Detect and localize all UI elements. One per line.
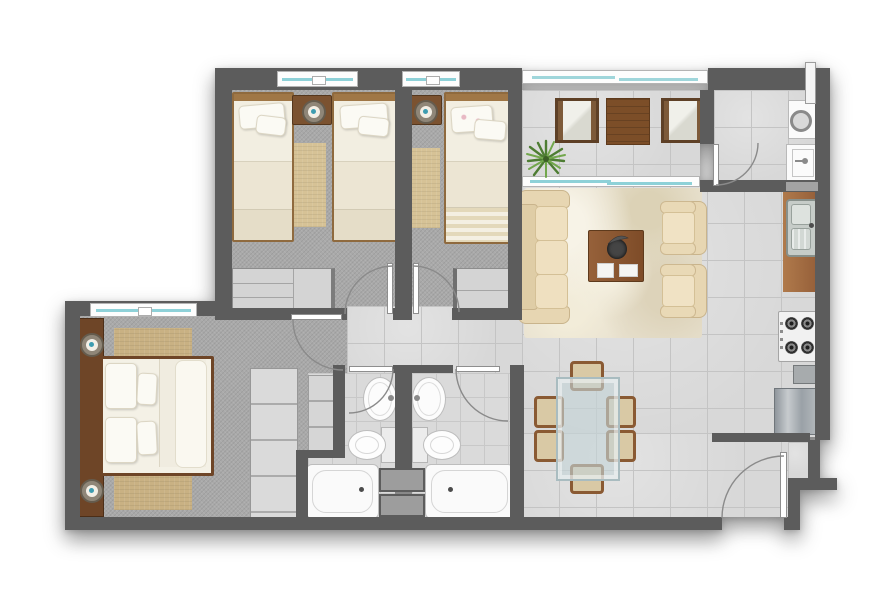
plant-icon xyxy=(527,141,565,177)
door-arc xyxy=(456,369,508,421)
door-arc xyxy=(722,456,784,518)
door-arc xyxy=(349,369,393,413)
floor-plan xyxy=(0,0,890,600)
door-arc xyxy=(716,143,758,185)
door-arc xyxy=(413,266,459,312)
feather-decor xyxy=(608,236,628,244)
door-arc xyxy=(293,320,343,370)
door-swing-overlay xyxy=(0,0,890,600)
door-arc xyxy=(345,266,393,314)
